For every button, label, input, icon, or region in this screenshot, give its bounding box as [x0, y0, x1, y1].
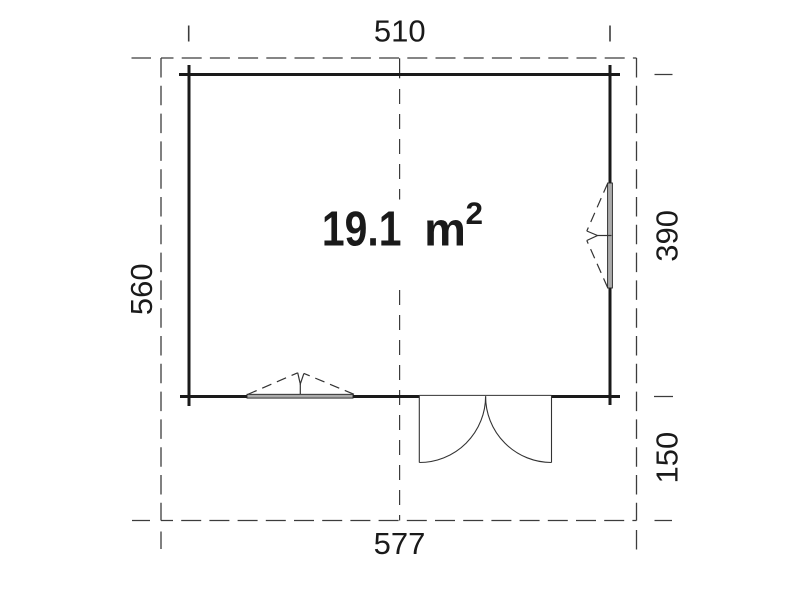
svg-text:577: 577 [374, 526, 426, 561]
svg-text:19.1: 19.1 [322, 201, 402, 256]
svg-text:560: 560 [124, 263, 159, 315]
svg-text:510: 510 [374, 13, 426, 48]
svg-text:2: 2 [466, 195, 484, 231]
svg-text:m: m [424, 203, 466, 256]
svg-text:150: 150 [649, 432, 684, 484]
svg-text:390: 390 [649, 210, 684, 262]
